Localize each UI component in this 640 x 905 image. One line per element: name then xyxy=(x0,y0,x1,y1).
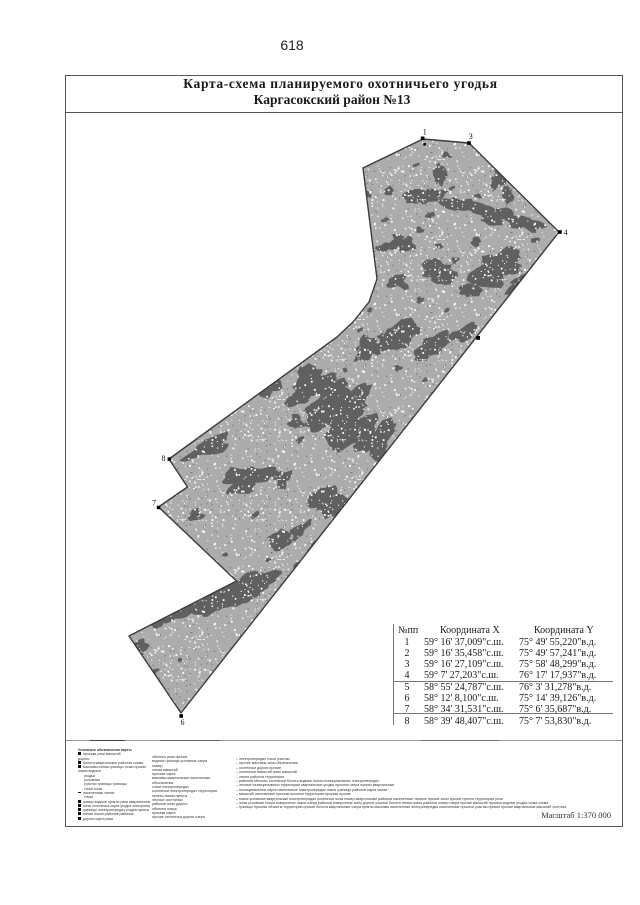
svg-text:7: 7 xyxy=(152,499,156,508)
svg-text:3: 3 xyxy=(469,132,473,141)
svg-text:6: 6 xyxy=(181,718,185,727)
svg-text:8: 8 xyxy=(162,454,166,463)
svg-text:1: 1 xyxy=(423,128,427,137)
svg-text:4: 4 xyxy=(564,228,568,237)
